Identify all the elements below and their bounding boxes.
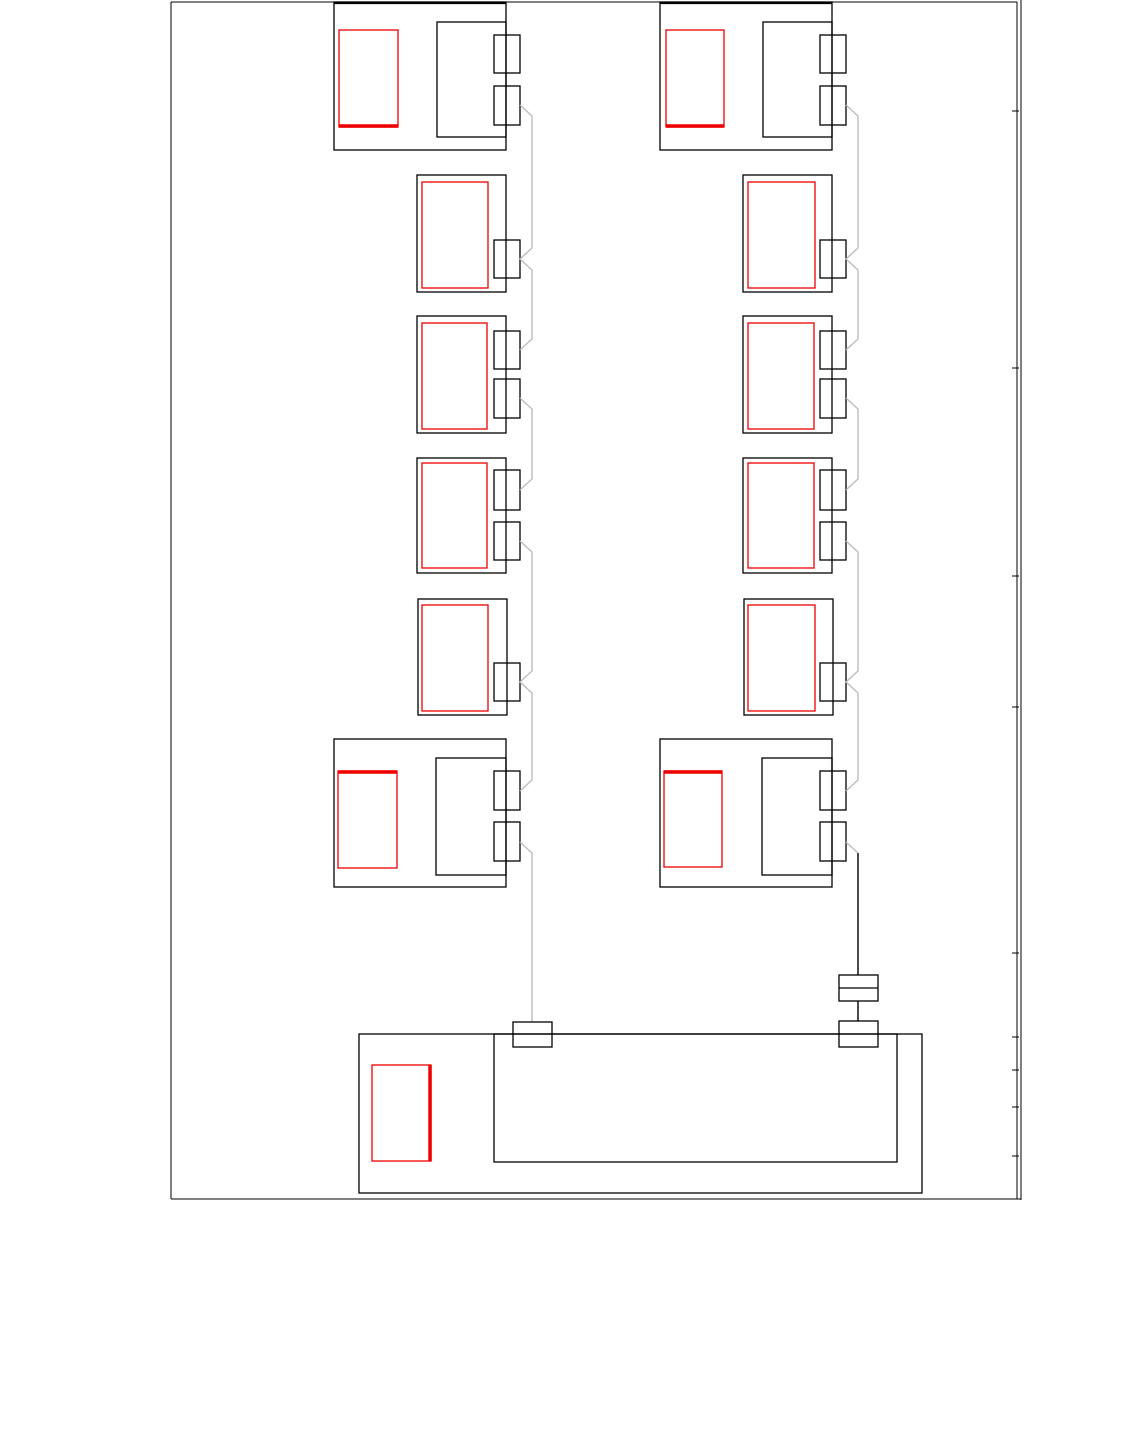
module-right-row4-pin-1 [820, 470, 846, 510]
module-left-row6-pin-1 [494, 771, 520, 810]
left-bus-segment-4 [520, 842, 532, 1022]
module-left-row4-pin-1 [494, 470, 520, 510]
left-bus-segment-3 [520, 541, 532, 791]
left-bus-segment-1 [520, 105, 532, 350]
module-left-row3-red-label [422, 323, 487, 429]
module-left-row4-outline [417, 458, 506, 573]
connectors-group [513, 975, 878, 1047]
module-right-row4-outline [743, 458, 832, 573]
module-left-row3-outline [417, 316, 506, 433]
module-right-row6-connector-body [762, 758, 832, 875]
module-left-row6-pin-2 [494, 822, 520, 861]
right-bus-segment-1 [846, 105, 858, 350]
module-bottom-controller-red-label [372, 1065, 431, 1161]
module-left-row2-outline [417, 175, 506, 292]
module-left-row4-red-label [422, 463, 487, 568]
module-left-row4-pin-2 [494, 522, 520, 560]
module-left-row1-pin-2 [494, 86, 520, 125]
page-frame-group [171, 0, 1021, 1200]
module-right-row6-pin-2 [820, 822, 846, 861]
right-bus-segment-4 [846, 842, 858, 853]
module-right-row1-connector-body [763, 22, 832, 137]
module-left-row3-pin-2 [494, 379, 520, 418]
module-left-row6-outline [334, 739, 506, 887]
module-right-row3-pin-1 [820, 331, 846, 369]
module-bottom-controller-outline [359, 1034, 922, 1193]
module-left-row2-red-label [422, 182, 488, 288]
module-right-row5-red-label [748, 605, 815, 711]
module-right-row1-red-label [666, 30, 724, 127]
module-right-row3-outline [743, 316, 832, 433]
right-bus-segment-2 [846, 398, 858, 490]
module-right-row1-outline [660, 2, 832, 150]
module-right-row1-pin-1 [820, 35, 846, 73]
module-left-row3-pin-1 [494, 331, 520, 369]
module-left-row1-outline [334, 2, 506, 150]
module-right-row6-red-label [664, 771, 722, 867]
module-right-row4-pin-2 [820, 522, 846, 560]
module-left-row1-connector-body [437, 22, 506, 137]
schematic-page [0, 0, 1134, 1443]
module-right-row2-red-label [748, 182, 815, 288]
module-bottom-controller-connector-body [494, 1034, 897, 1162]
module-right-row3-pin-2 [820, 379, 846, 418]
module-left-row5-red-label [422, 605, 488, 711]
module-right-row2-outline [743, 175, 832, 292]
module-right-row2-pin-1 [820, 240, 846, 278]
wires-group [520, 105, 858, 1022]
right-bus-segment-3 [846, 541, 858, 791]
module-right-row6-pin-1 [820, 771, 846, 810]
module-right-row1-pin-2 [820, 86, 846, 125]
module-right-row4-red-label [748, 463, 814, 568]
module-left-row2-pin-1 [494, 240, 520, 278]
left-bus-segment-2 [520, 398, 532, 490]
module-left-row6-connector-body [436, 758, 506, 875]
module-left-row1-red-label [339, 30, 398, 127]
module-right-row3-red-label [748, 323, 814, 429]
module-right-row6-outline [660, 739, 832, 887]
wiring-diagram-svg [0, 0, 1134, 1443]
modules-group [334, 2, 922, 1193]
module-left-row6-red-label [338, 771, 397, 868]
module-left-row1-pin-1 [494, 35, 520, 73]
